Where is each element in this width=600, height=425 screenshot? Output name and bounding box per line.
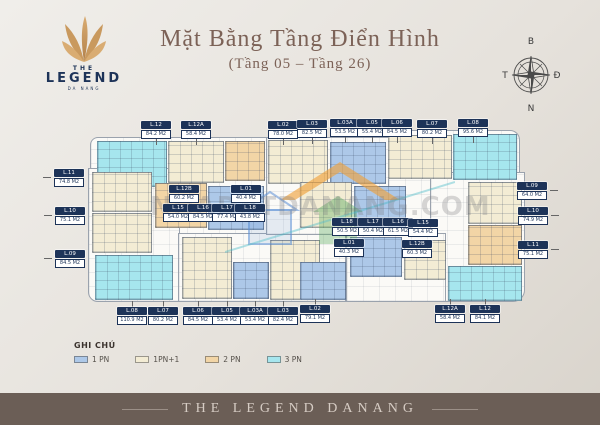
leader-line — [44, 258, 52, 259]
unit-id-badge: L.06 — [382, 119, 412, 127]
leader-line — [283, 139, 284, 145]
unit-label: L.0382.4 M2 — [265, 301, 301, 325]
unit-id-badge: L.11 — [54, 169, 84, 177]
legend-items: 1 PN1PN+12 PN3 PN — [74, 355, 302, 364]
unit-id-badge: L.15 — [408, 219, 438, 227]
unit-area: 75.1 M2 — [55, 216, 85, 225]
unit-label: L.0895.6 M2 — [455, 119, 491, 143]
unit-area: 58.4 M2 — [181, 130, 211, 139]
footer-divider — [122, 409, 168, 410]
unit-id-badge: L.18 — [235, 204, 265, 212]
legend-item: 3 PN — [267, 355, 302, 364]
unit-label: L.12B60.2 M2 — [166, 185, 202, 203]
unit-label: L.0140.4 M2 — [228, 185, 264, 203]
leader-line — [550, 190, 558, 191]
unit-label: L.1075.1 M2 — [52, 207, 88, 225]
unit-area: 74.9 M2 — [518, 216, 548, 225]
legend: GHI CHÚ 1 PN1PN+12 PN3 PN — [74, 341, 302, 364]
unit-area: 40.3 M2 — [334, 248, 364, 257]
unit-label: L.0780.2 M2 — [145, 301, 181, 325]
leader-line — [44, 215, 52, 216]
unit-label: L.0964.0 M2 — [514, 182, 550, 200]
unit-area: 75.1 M2 — [518, 250, 548, 259]
unit-label: L.1554.4 M2 — [405, 219, 441, 237]
unit-block-2pn — [468, 225, 522, 265]
leader-line — [372, 137, 373, 143]
legend-swatch-1pn — [74, 356, 88, 363]
unit-id-badge: L.08 — [117, 307, 147, 315]
footer-text: THE LEGEND DANANG — [182, 401, 418, 417]
unit-block-1pn1 — [268, 140, 328, 184]
unit-area: 84.5 M2 — [382, 128, 412, 137]
unit-id-badge: L.10 — [55, 207, 85, 215]
unit-area: 43.8 M2 — [235, 213, 265, 222]
unit-area: 82.5 M2 — [297, 129, 327, 138]
unit-label: L.1284.2 M2 — [138, 121, 174, 145]
unit-block-1pn — [300, 262, 346, 300]
legend-swatch-3pn — [267, 356, 281, 363]
legend-swatch-1pn1 — [135, 356, 149, 363]
unit-label: L.1843.8 M2 — [232, 204, 268, 222]
unit-block-1pn1 — [168, 141, 224, 183]
legend-item: 1PN+1 — [135, 355, 179, 364]
unit-block-1pn — [330, 142, 386, 184]
unit-label: L.0684.5 M2 — [379, 119, 415, 143]
unit-area: 40.4 M2 — [231, 194, 261, 203]
unit-label: L.0984.5 M2 — [52, 250, 88, 268]
unit-area: 74.8 M2 — [54, 178, 84, 187]
leader-line — [432, 138, 433, 144]
brochure-page: THE LEGEND DA NANG Mặt Bằng Tầng Điển Hì… — [0, 0, 600, 425]
unit-area: 60.2 M2 — [169, 194, 199, 203]
unit-id-badge: L.01 — [231, 185, 261, 193]
unit-block-1pn1 — [92, 213, 152, 253]
unit-block-2pn — [225, 141, 265, 181]
unit-area: 80.2 M2 — [417, 129, 447, 138]
unit-area: 84.1 M2 — [470, 314, 500, 323]
unit-block-3pn — [95, 255, 173, 300]
legend-label: 2 PN — [223, 355, 240, 364]
leader-line — [43, 177, 51, 178]
unit-block-1pn1 — [92, 172, 152, 212]
unit-area: 95.6 M2 — [458, 128, 488, 137]
unit-id-badge: L.12A — [181, 121, 211, 129]
unit-label: L.1174.8 M2 — [51, 169, 87, 187]
legend-label: 3 PN — [285, 355, 302, 364]
leader-line — [156, 139, 157, 145]
unit-label: L.0382.5 M2 — [294, 120, 330, 144]
unit-block-3pn — [448, 266, 522, 301]
unit-area: 79.1 M2 — [300, 314, 330, 323]
leader-line — [196, 139, 197, 145]
footer-divider — [432, 409, 478, 410]
unit-id-badge: L.12 — [141, 121, 171, 129]
unit-label: L.12A58.4 M2 — [432, 299, 468, 323]
unit-area: 110.9 M2 — [117, 316, 147, 325]
legend-label: 1 PN — [92, 355, 109, 364]
unit-label: L.12A58.4 M2 — [178, 121, 214, 145]
unit-area: 80.2 M2 — [148, 316, 178, 325]
unit-label: L.0279.1 M2 — [297, 299, 333, 323]
unit-area: 54.4 M2 — [408, 228, 438, 237]
footer-bar: THE LEGEND DANANG — [0, 393, 600, 425]
unit-area: 84.5 M2 — [55, 259, 85, 268]
unit-id-badge: L.07 — [417, 120, 447, 128]
unit-id-badge: L.10 — [518, 207, 548, 215]
unit-block-1pn1 — [182, 237, 232, 299]
legend-label: 1PN+1 — [153, 355, 179, 364]
unit-label: L.0780.2 M2 — [414, 120, 450, 144]
unit-id-badge: L.12B — [402, 240, 432, 248]
unit-label: L.0140.3 M2 — [331, 239, 367, 257]
unit-id-badge: L.11 — [518, 241, 548, 249]
legend-item: 1 PN — [74, 355, 109, 364]
unit-block-1pn — [233, 262, 269, 299]
unit-area: 64.0 M2 — [517, 191, 547, 200]
leader-line — [551, 215, 559, 216]
unit-label: L.1175.1 M2 — [515, 241, 551, 259]
unit-area: 82.4 M2 — [268, 316, 298, 325]
leader-line — [345, 137, 346, 143]
leader-line — [397, 137, 398, 143]
unit-id-badge: L.12B — [169, 185, 199, 193]
unit-label: L.12B60.3 M2 — [399, 240, 435, 258]
unit-id-badge: L.02 — [300, 305, 330, 313]
unit-id-badge: L.09 — [55, 250, 85, 258]
leader-line — [312, 138, 313, 144]
unit-id-badge: L.01 — [334, 239, 364, 247]
unit-id-badge: L.07 — [148, 307, 178, 315]
unit-id-badge: L.09 — [517, 182, 547, 190]
unit-label: L.1284.1 M2 — [467, 299, 503, 323]
leader-line — [473, 137, 474, 143]
unit-id-badge: L.03 — [297, 120, 327, 128]
unit-label: L.1074.9 M2 — [515, 207, 551, 225]
unit-area: 84.2 M2 — [141, 130, 171, 139]
leader-line — [551, 249, 559, 250]
unit-id-badge: L.12 — [470, 305, 500, 313]
legend-heading: GHI CHÚ — [74, 341, 302, 350]
unit-area: 58.4 M2 — [435, 314, 465, 323]
unit-id-badge: L.08 — [458, 119, 488, 127]
legend-swatch-2pn — [205, 356, 219, 363]
unit-area: 60.3 M2 — [402, 249, 432, 258]
unit-id-badge: L.03 — [268, 307, 298, 315]
legend-item: 2 PN — [205, 355, 240, 364]
unit-id-badge: L.12A — [435, 305, 465, 313]
